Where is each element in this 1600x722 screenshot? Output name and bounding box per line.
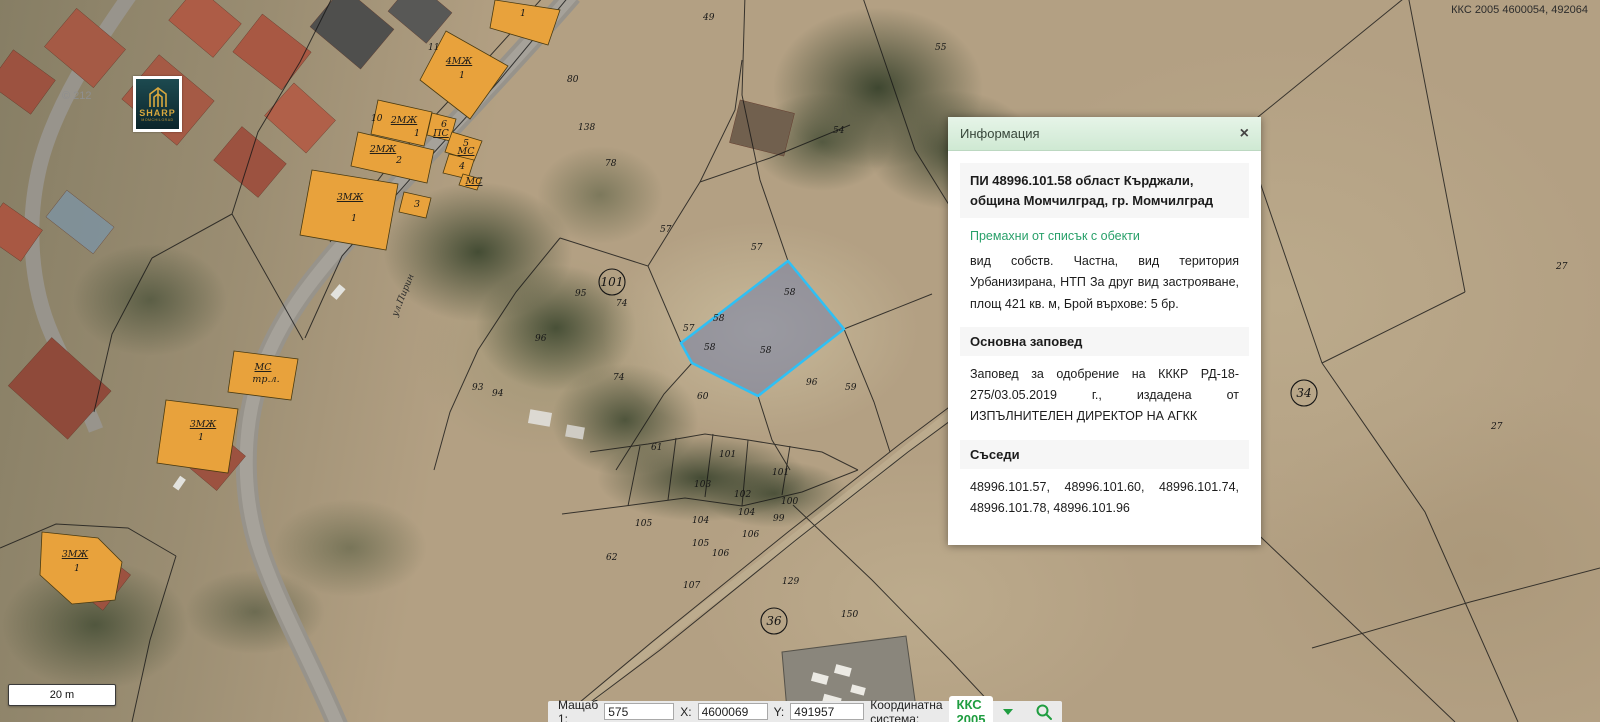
building-label: 4МЖ bbox=[445, 56, 473, 67]
search-icon bbox=[1035, 703, 1053, 721]
scale-bar: 20 m bbox=[8, 684, 116, 706]
parcel-number-label: 94 bbox=[492, 389, 504, 399]
building-label: ПС bbox=[432, 128, 449, 139]
crs-label: Координатна система: bbox=[870, 698, 942, 722]
sharp-logo-inner: SHARP MOMCHILGRAD bbox=[136, 79, 179, 129]
building-label: 3 bbox=[414, 199, 420, 210]
parcel-number-label: 150 bbox=[841, 610, 858, 620]
building-label: 1 bbox=[198, 432, 204, 443]
parcel-number-label: 58 bbox=[784, 288, 796, 298]
parcel-number-label: 129 bbox=[782, 577, 799, 587]
parcel-number-label: 103 bbox=[694, 480, 711, 490]
quarter-number-label: 101 bbox=[601, 275, 624, 289]
building-label: МС bbox=[254, 362, 273, 373]
parcel-number-label: 107 bbox=[683, 581, 700, 591]
building-label: МС bbox=[457, 146, 476, 157]
parcel-number-label: 11 bbox=[428, 43, 439, 53]
parcel-number-label: 100 bbox=[781, 497, 798, 507]
building-label: 2МЖ bbox=[390, 115, 418, 126]
cadastre-overlay[interactable]: 4955801110138547857577495967493945758585… bbox=[0, 0, 1600, 722]
parcel-number-label: 138 bbox=[578, 123, 595, 133]
parcel-number-label: 74 bbox=[616, 299, 628, 309]
parcel-number-label: 54 bbox=[833, 126, 845, 136]
parcel-number-label: 57 bbox=[751, 243, 763, 253]
building-label: 4 bbox=[458, 161, 465, 172]
building-label: МС bbox=[465, 176, 484, 187]
building-label: 1 bbox=[414, 128, 420, 139]
building-label: 1 bbox=[351, 213, 357, 224]
street-name-label: ул.Пирин bbox=[390, 273, 417, 319]
parcel-number-label: 57 bbox=[660, 225, 672, 235]
parcel-number-label: 93 bbox=[472, 383, 484, 393]
scale-bar-label: 20 m bbox=[50, 689, 74, 701]
sharp-logo-ornament-icon bbox=[146, 86, 170, 108]
parcel-number-label: 80 bbox=[567, 75, 579, 85]
close-icon[interactable]: × bbox=[1240, 126, 1249, 142]
building-label: 3МЖ bbox=[337, 192, 364, 203]
parcel-title: ПИ 48996.101.58 област Кърджали, община … bbox=[960, 163, 1249, 218]
parcel-number-label: 57 bbox=[683, 324, 695, 334]
parcel-number-label: 96 bbox=[535, 334, 547, 344]
coordinate-search-button[interactable] bbox=[1035, 703, 1053, 721]
crs-dropdown-arrow-icon[interactable] bbox=[1003, 709, 1013, 715]
parcel-number-label: 106 bbox=[712, 549, 729, 559]
cursor-coordinates-readout: ККС 2005 4600054, 492064 bbox=[1451, 4, 1588, 16]
scale-input[interactable] bbox=[604, 703, 674, 720]
parcel-number-label: 49 bbox=[702, 13, 715, 23]
parcel-number-label: 59 bbox=[845, 383, 857, 393]
parcel-number-label: 106 bbox=[742, 530, 759, 540]
parcel-number-label: 95 bbox=[575, 289, 587, 299]
sharp-logo: SHARP MOMCHILGRAD bbox=[133, 76, 182, 132]
y-coordinate-input[interactable] bbox=[790, 703, 864, 720]
parcel-number-label: 10 bbox=[371, 114, 383, 124]
building-label: 2 bbox=[395, 155, 402, 166]
section-heading-neighbors: Съседи bbox=[960, 440, 1249, 469]
parcel-number-label: 96 bbox=[806, 378, 818, 388]
logo-brand-text: SHARP bbox=[139, 109, 176, 118]
parcel-number-label: 62 bbox=[606, 553, 618, 563]
scale-label: Мащаб 1: bbox=[558, 698, 598, 722]
parcel-number-label: 58 bbox=[713, 314, 725, 324]
info-panel-body: ПИ 48996.101.58 област Кърджали, община … bbox=[948, 151, 1261, 545]
parcel-number-label: 74 bbox=[613, 373, 625, 383]
parcel-number-label: 58 bbox=[760, 346, 772, 356]
building-label: 1 bbox=[459, 70, 465, 81]
quarter-number-label: 36 bbox=[766, 614, 782, 628]
parcel-number-label: 78 bbox=[605, 159, 617, 169]
parcel-details-text: вид собств. Частна, вид територия Урбани… bbox=[970, 251, 1239, 315]
order-text: Заповед за одобрение на КККР РД-18-275/0… bbox=[970, 364, 1239, 428]
parcel-number-label: 102 bbox=[734, 490, 751, 500]
building-label: 3МЖ bbox=[62, 549, 89, 560]
parcel-number-label: 101 bbox=[772, 468, 789, 478]
logo-city-text: MOMCHILGRAD bbox=[141, 119, 173, 123]
building-label: тр.л. bbox=[252, 374, 279, 385]
neighbors-text: 48996.101.57, 48996.101.60, 48996.101.74… bbox=[970, 477, 1239, 520]
parcel-number-label: 99 bbox=[773, 514, 785, 524]
remove-from-list-link[interactable]: Премахни от списък с обекти bbox=[970, 229, 1239, 243]
parcel-number-label: 101 bbox=[719, 450, 736, 460]
parcel-number-label: 105 bbox=[635, 519, 652, 529]
building-label: 1 bbox=[520, 8, 526, 19]
y-label: Y: bbox=[774, 705, 785, 719]
parcel-number-label: 27 bbox=[1555, 262, 1568, 272]
building-label: 2МЖ bbox=[369, 144, 397, 155]
section-heading-order: Основна заповед bbox=[960, 327, 1249, 356]
x-coordinate-input[interactable] bbox=[698, 703, 768, 720]
parcel-number-label: 58 bbox=[704, 343, 716, 353]
parcel-number-label: 55 bbox=[935, 43, 947, 53]
quarter-number-label: 34 bbox=[1296, 386, 1311, 400]
building-label: 1 bbox=[74, 563, 80, 574]
map-viewport[interactable]: 4955801110138547857577495967493945758585… bbox=[0, 0, 1600, 722]
crs-selected-value[interactable]: ККС 2005 bbox=[949, 696, 994, 722]
parcel-number-label: 61 bbox=[651, 443, 662, 453]
copyright-watermark: © 212 bbox=[62, 90, 92, 102]
parcel-number-label: 27 bbox=[1490, 422, 1503, 432]
x-label: X: bbox=[680, 705, 691, 719]
parcel-number-label: 104 bbox=[692, 516, 709, 526]
parcel-number-label: 60 bbox=[697, 392, 709, 402]
building-label: 3МЖ bbox=[190, 419, 217, 430]
info-panel: Информация × ПИ 48996.101.58 област Кърд… bbox=[948, 117, 1261, 545]
info-panel-title: Информация bbox=[960, 126, 1040, 141]
info-panel-header: Информация × bbox=[948, 117, 1261, 151]
parcel-number-label: 104 bbox=[738, 508, 755, 518]
selected-parcel-58[interactable] bbox=[681, 261, 844, 396]
status-bar: Мащаб 1: X: Y: Координатна система: ККС … bbox=[548, 701, 1062, 722]
parcel-number-label: 105 bbox=[692, 539, 709, 549]
